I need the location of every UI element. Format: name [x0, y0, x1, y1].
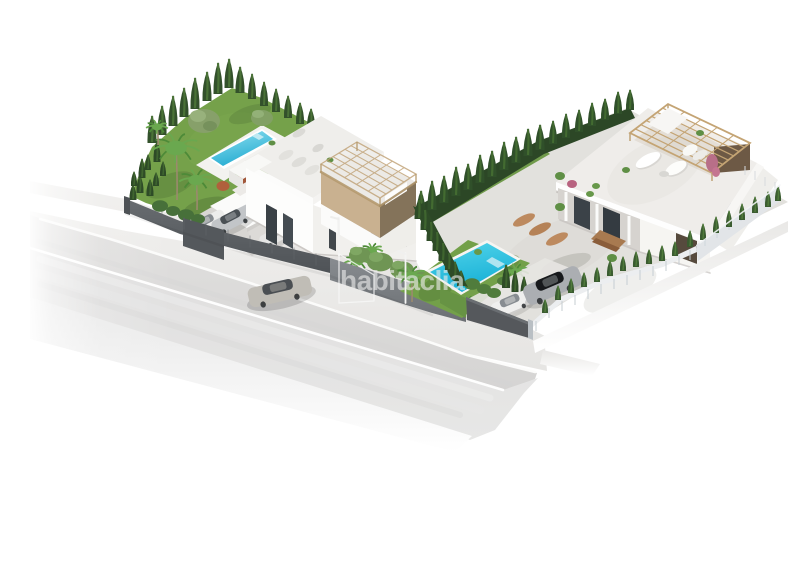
svg-text:habitaclia: habitaclia [340, 265, 465, 296]
